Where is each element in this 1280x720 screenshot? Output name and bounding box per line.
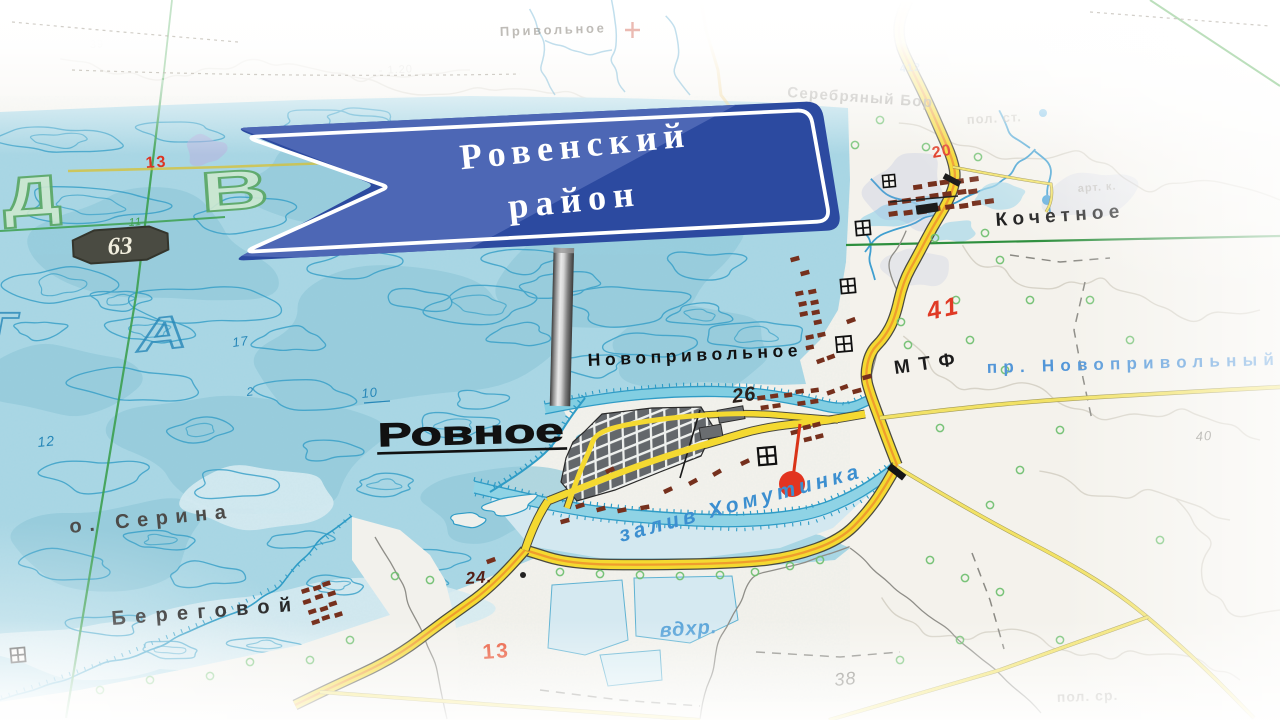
svg-text:11: 11 [128,216,142,229]
svg-text:10: 10 [361,384,379,401]
svg-text:17: 17 [231,333,249,350]
svg-text:Г: Г [0,303,20,355]
svg-text:2: 2 [245,384,255,399]
svg-text:А: А [132,305,189,362]
svg-text:24.: 24. [464,567,493,588]
svg-text:13: 13 [145,154,168,172]
svg-text:26: 26 [730,383,758,408]
svg-text:12: 12 [37,432,56,450]
svg-text:Ровное: Ровное [377,412,564,454]
svg-text:63: 63 [107,232,133,260]
svg-text:Д: Д [0,162,62,229]
